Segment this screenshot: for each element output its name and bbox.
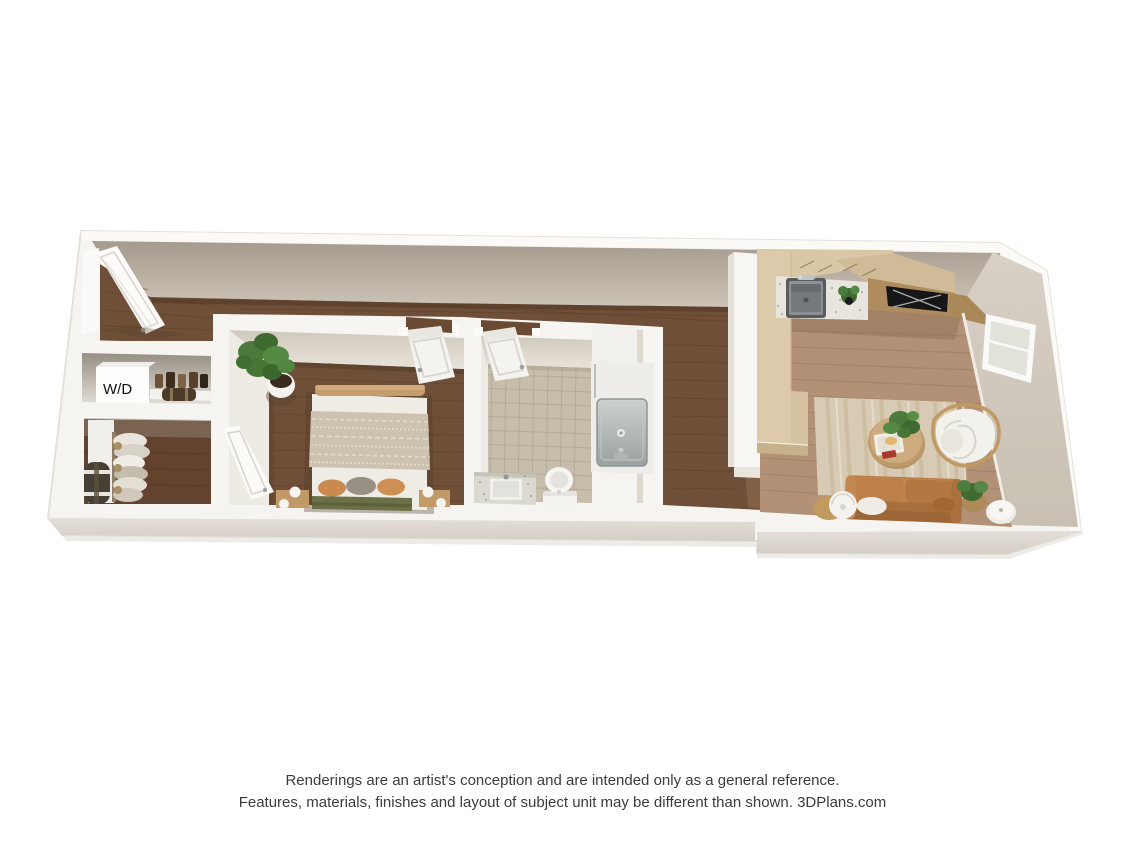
svg-text:W/D: W/D: [103, 381, 132, 398]
